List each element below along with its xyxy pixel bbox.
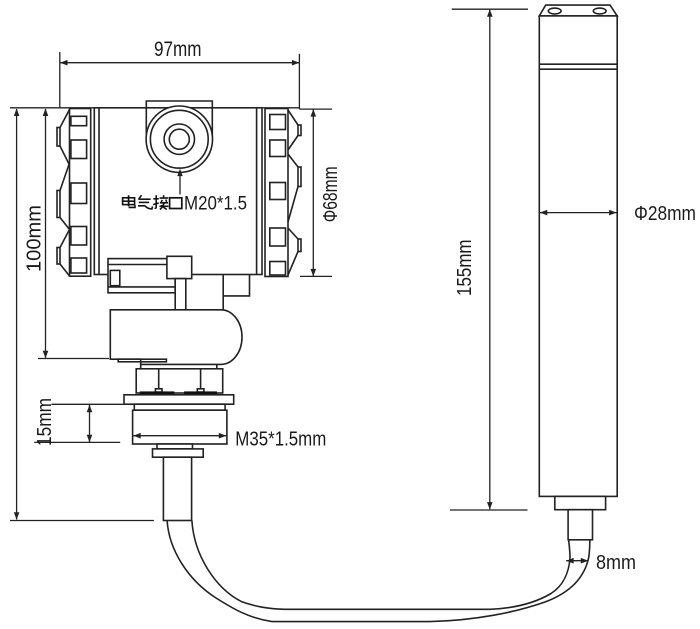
svg-text:Φ68mm: Φ68mm bbox=[320, 166, 342, 222]
svg-text:Φ28mm: Φ28mm bbox=[634, 202, 696, 225]
svg-text:97mm: 97mm bbox=[154, 38, 202, 61]
svg-text:155mm: 155mm bbox=[454, 239, 476, 296]
svg-text:100mm: 100mm bbox=[23, 205, 45, 272]
svg-text:M35*1.5mm: M35*1.5mm bbox=[235, 428, 326, 451]
svg-text:M20*1.5: M20*1.5 bbox=[184, 193, 247, 215]
svg-text:8mm: 8mm bbox=[596, 551, 636, 574]
svg-text:15mm: 15mm bbox=[34, 398, 56, 446]
